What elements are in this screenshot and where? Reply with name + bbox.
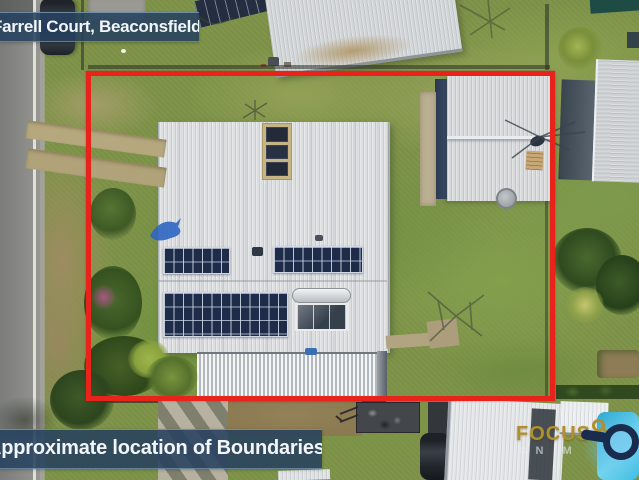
magnifying-glass-icon xyxy=(603,424,639,460)
location-banner: Farrell Court, Beaconsfield xyxy=(0,12,199,42)
pole-shadow xyxy=(460,0,510,38)
boundary-disclaimer-text: Approximate location of Boundaries xyxy=(0,430,322,467)
aerial-photo: Farrell Court, Beaconsfield Approximate … xyxy=(0,0,639,480)
boundary-disclaimer-banner: Approximate location of Boundaries xyxy=(0,429,322,469)
location-banner-text: Farrell Court, Beaconsfield xyxy=(0,13,199,40)
watermark-brand: FOCUS xyxy=(516,423,591,446)
watermark-tagline: ON M xyxy=(519,445,580,457)
garden-hose xyxy=(196,12,232,24)
property-boundary-outline xyxy=(86,71,555,401)
trailer-hitch xyxy=(336,407,358,422)
